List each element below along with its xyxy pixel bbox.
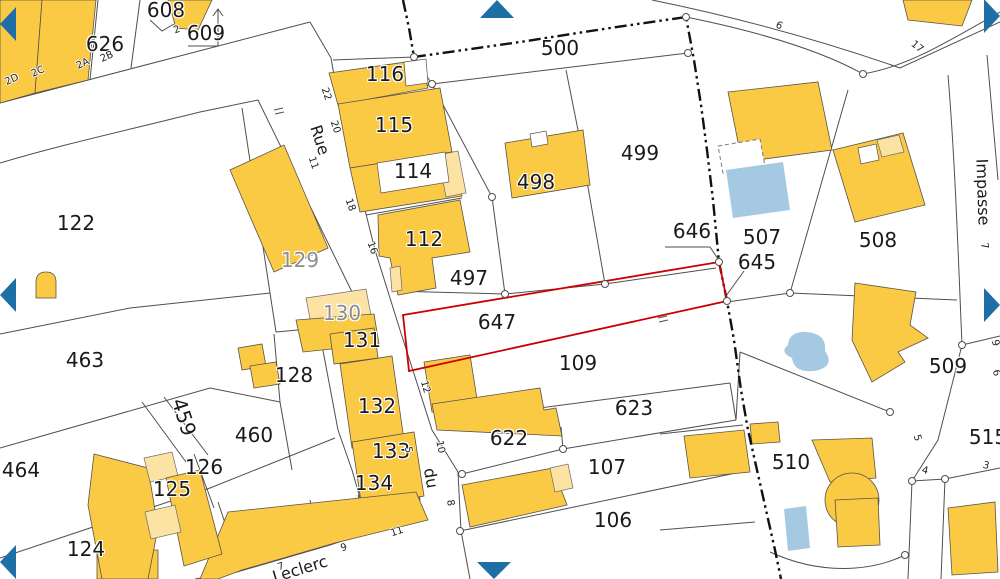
pond-shape: [784, 332, 828, 371]
building-shape: [250, 362, 280, 388]
building-shape: [684, 430, 750, 478]
pool-shape: [784, 506, 810, 551]
building-shape: [330, 328, 378, 364]
pool-shape: [726, 162, 790, 218]
building-shape: [200, 492, 428, 579]
building-shape: [168, 0, 212, 30]
water-layer: [726, 162, 829, 551]
adjacent-sheet-arrow-right[interactable]: [984, 288, 1000, 322]
adjacent-sheet-arrow-right[interactable]: [984, 0, 1000, 33]
building-shape: [340, 356, 404, 448]
adjacent-sheet-arrow-down[interactable]: [477, 562, 511, 579]
cadastral-map: 6266086091161151141121221294631301311281…: [0, 0, 1000, 579]
building-shape: [36, 272, 56, 298]
adjacent-sheet-arrow-up[interactable]: [480, 0, 514, 18]
selected-parcel-outline[interactable]: [403, 262, 727, 371]
building-shape: [750, 422, 780, 444]
adjacent-sheet-arrow-left[interactable]: [0, 545, 16, 579]
adjacent-sheet-arrow-left[interactable]: [0, 278, 16, 312]
building-shape: [230, 145, 328, 272]
building-shape: [835, 498, 880, 547]
building-annex: [390, 266, 402, 292]
building-shape: [948, 502, 998, 575]
building-shape: [35, 0, 96, 93]
building-shape: [462, 468, 567, 527]
map-canvas: [0, 0, 1000, 579]
survey-points: [411, 14, 966, 559]
buildings-layer: [0, 0, 998, 579]
building-shape: [903, 0, 972, 26]
